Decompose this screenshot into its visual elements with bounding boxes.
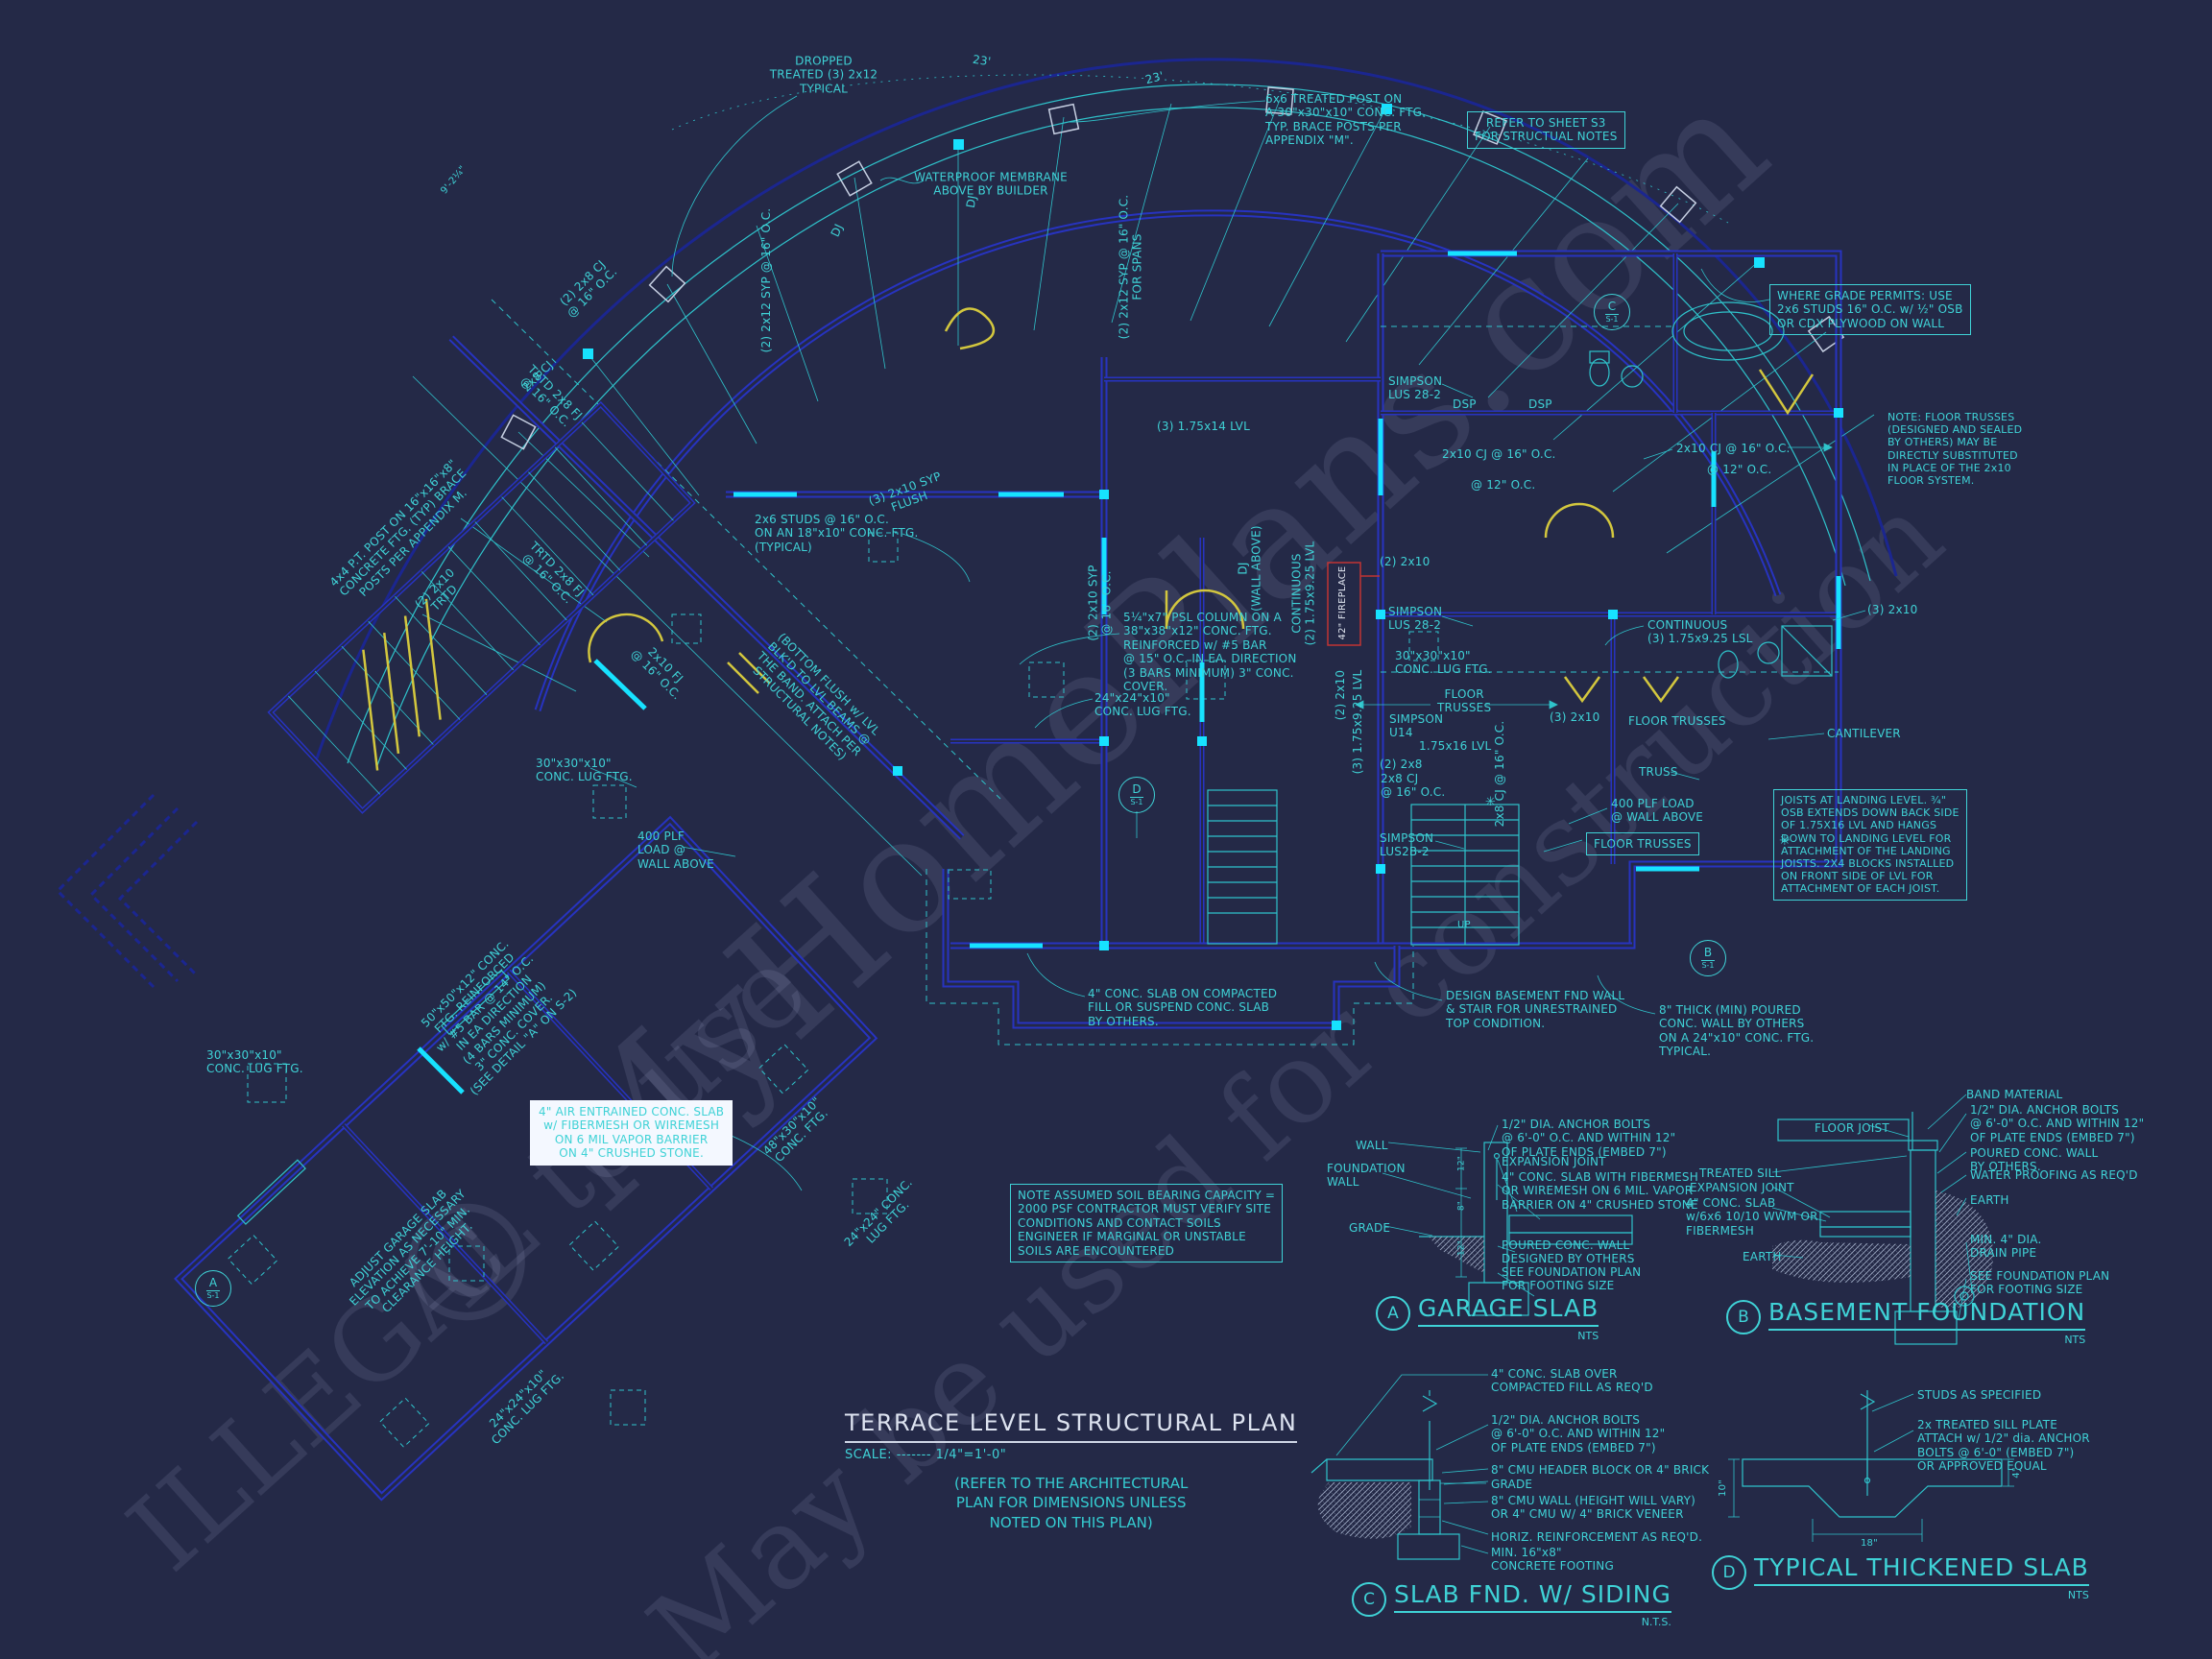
blueprint-canvas: © MyHomePlans.com ILLEGAL to use May be …: [0, 0, 2212, 1659]
annotation-label: 8": [1457, 1201, 1468, 1211]
annotation-label: @ 12" O.C.: [1471, 478, 1535, 492]
annotation-label: 18": [1861, 1538, 1878, 1550]
annotation-label: MIN. 4" DIA. DRAIN PIPE: [1970, 1233, 2041, 1261]
detail-ref-bubble: CS-1: [1594, 294, 1630, 330]
annotation-label: 2x TREATED SILL PLATE ATTACH w/ 1/2" dia…: [1917, 1418, 2090, 1474]
annotation-label: WATER PROOFING AS REQ'D: [1970, 1168, 2138, 1182]
annotation-label: 1/2" DIA. ANCHOR BOLTS @ 6'-0" O.C. AND …: [1502, 1118, 1675, 1159]
annotation-label: 30"x30"x10" CONC. LUG FTG.: [206, 1048, 303, 1076]
annotation-label: STUDS AS SPECIFIED: [1917, 1388, 2041, 1402]
annotation-label: 1/2" DIA. ANCHOR BOLTS @ 6'-0" O.C. AND …: [1491, 1413, 1665, 1455]
annotation-label: 23': [972, 53, 992, 69]
annotation-label: 8" THICK (MIN) POURED CONC. WALL BY OTHE…: [1659, 1003, 1814, 1059]
deck-post-markers: [501, 87, 1843, 449]
annotation-label: EXPANSION JOINT: [1690, 1181, 1794, 1194]
detail-ref-bubble: BS-1: [1690, 940, 1726, 976]
annotation-label: 8" CMU WALL (HEIGHT WILL VARY) OR 4" CMU…: [1491, 1494, 1695, 1522]
detail-a-scale: NTS: [1577, 1330, 1599, 1342]
detail-d-bubble: D: [1712, 1555, 1746, 1590]
annotation-label: GRADE: [1349, 1221, 1390, 1235]
annotation-label: 2x8 CJ @ 16" O.C.: [1493, 721, 1506, 828]
annotation-label: TRUSS: [1639, 765, 1678, 779]
detail-a-bubble: A: [1376, 1296, 1410, 1331]
detail-b-bubble: B: [1726, 1300, 1761, 1334]
annotation-label: (2) 2x12 SYP @ 16" O.C. FOR SPANS: [1118, 195, 1145, 340]
annotation-label: HORIZ. REINFORCEMENT AS REQ'D.: [1491, 1530, 1702, 1544]
annotation-label: NOTE: FLOOR TRUSSES (DESIGNED AND SEALED…: [1887, 411, 2022, 487]
annotation-label: DJ: [964, 194, 979, 208]
detail-b-scale: NTS: [2064, 1334, 2085, 1346]
annotation-label: SEE FOUNDATION PLAN FOR FOOTING SIZE: [1970, 1269, 2109, 1297]
annotation-label: 1.75x16 LVL: [1419, 739, 1491, 753]
detail-slab-fnd-siding: [1311, 1375, 1488, 1559]
annotation-label: WATERPROOF MEMBRANE ABOVE BY BUILDER: [914, 171, 1068, 199]
annotation-label: WALL: [1356, 1139, 1388, 1152]
detail-d-scale: NTS: [2068, 1589, 2089, 1601]
detail-d-title: D TYPICAL THICKENED SLAB NTS: [1712, 1553, 2089, 1601]
fireplace-outline: [1328, 563, 1380, 645]
annotation-label: TREATED SILL: [1699, 1166, 1781, 1180]
annotation-label: 30"x30"x10" CONC. LUG FTG.: [1395, 649, 1492, 677]
annotation-label: 2x6 STUDS @ 16" O.C. ON AN 18"x10" CONC.…: [755, 513, 918, 554]
annotation-label: 42" FIREPLACE: [1337, 566, 1349, 640]
annotation-label: DSP: [1453, 397, 1477, 411]
annotation-label: CONTINUOUS (3) 1.75x9.25 LSL: [1647, 618, 1753, 646]
annotation-label: 8" CMU HEADER BLOCK OR 4" BRICK: [1491, 1463, 1709, 1477]
scale-note: SCALE: ------- 1/4"=1'-0": [845, 1448, 1297, 1462]
annotation-label: GRADE: [1491, 1478, 1532, 1491]
annotation-label: SEE FOUNDATION PLAN FOR FOOTING SIZE: [1502, 1265, 1641, 1293]
annotation-label: (3) 2x10: [1550, 710, 1599, 724]
annotation-label: 12": [1457, 1240, 1468, 1256]
detail-c-bubble: C: [1352, 1582, 1386, 1617]
annotation-label: CANTILEVER: [1827, 727, 1901, 740]
annotation-label: JOISTS AT LANDING LEVEL. ¾" OSB EXTENDS …: [1773, 789, 1967, 901]
annotation-label: 400 PLF LOAD @ WALL ABOVE: [1611, 797, 1703, 825]
detail-d-label: TYPICAL THICKENED SLAB: [1754, 1553, 2089, 1586]
detail-c-scale: N.T.S.: [1642, 1616, 1671, 1628]
annotation-label: REFER TO SHEET S3 FOR STRUCTUAL NOTES: [1467, 111, 1625, 149]
annotation-label: POURED CONC. WALL DESIGNED BY OTHERS: [1502, 1238, 1635, 1266]
stair: [1208, 790, 1519, 945]
annotation-label: 2x10 CJ @ 16" O.C.: [1676, 442, 1791, 455]
annotation-label: 1/2" DIA. ANCHOR BOLTS @ 6'-0" O.C. AND …: [1970, 1103, 2144, 1144]
annotation-label: DESIGN BASEMENT FND WALL & STAIR FOR UNR…: [1446, 989, 1624, 1030]
detail-ref-bubble: DS-1: [1118, 777, 1155, 813]
annotation-label: 6x6 TREATED POST ON A 30"x30"x10" CONC. …: [1265, 92, 1426, 148]
title-block: TERRACE LEVEL STRUCTURAL PLAN SCALE: ---…: [845, 1409, 1297, 1532]
annotation-label: FLOOR TRUSSES: [1586, 832, 1699, 855]
annotation-label: 12": [1457, 1156, 1468, 1171]
annotation-label: 2x8 CJ @ 16" O.C.: [1381, 772, 1445, 800]
annotation-label: EXPANSION JOINT: [1502, 1155, 1606, 1168]
annotation-label: SIMPSON U14: [1389, 712, 1443, 740]
annotation-label: EARTH: [1743, 1250, 1782, 1263]
annotation-label: 2x10 CJ @ 16" O.C.: [1442, 447, 1556, 461]
detail-ref-bubble: AS-1: [195, 1270, 231, 1307]
annotation-label: (3) 1.75x14 LVL: [1157, 420, 1250, 433]
annotation-label: (2) 2x8: [1380, 757, 1423, 771]
annotation-label: FOUNDATION WALL: [1327, 1162, 1406, 1190]
reference-note: (REFER TO THE ARCHITECTURAL PLAN FOR DIM…: [845, 1474, 1297, 1532]
annotation-label: FLOOR TRUSSES: [1628, 714, 1726, 728]
annotation-label: 4": [2011, 1467, 2023, 1478]
annotation-label: (3) 2x10: [1867, 603, 1917, 616]
annotation-label: @ 12" O.C.: [1707, 463, 1771, 476]
annotation-label: NOTE ASSUMED SOIL BEARING CAPACITY = 200…: [1010, 1184, 1283, 1262]
annotation-label: DJ (WALL ABOVE): [1237, 525, 1264, 612]
detail-b-label: BASEMENT FOUNDATION: [1768, 1298, 2085, 1331]
detail-c-label: SLAB FND. W/ SIDING: [1394, 1580, 1671, 1613]
annotation-label: 4" CONC. SLAB OVER COMPACTED FILL AS REQ…: [1491, 1367, 1653, 1395]
annotation-label: 24"x24"x10" CONC. LUG FTG.: [1094, 691, 1191, 719]
annotation-label: UP: [1457, 920, 1471, 931]
annotation-label: 4" CONC. SLAB ON COMPACTED FILL OR SUSPE…: [1088, 987, 1277, 1028]
annotation-label: (2) 2x10 SYP @ 16" O.C.: [1087, 565, 1115, 640]
annotation-label: 5¼"x7" PSL COLUMN ON A 38"x38"x12" CONC.…: [1123, 611, 1297, 693]
detail-c-title: C SLAB FND. W/ SIDING N.T.S.: [1352, 1580, 1671, 1628]
annotation-label: BAND MATERIAL: [1966, 1088, 2062, 1101]
annotation-label: (3) 1.75x9.25 LVL: [1351, 670, 1364, 775]
annotation-label: CONTINUOUS (2) 1.75x9.25 LVL: [1290, 541, 1318, 646]
detail-b-title: B BASEMENT FOUNDATION NTS: [1726, 1298, 2085, 1346]
annotation-label: SIMPSON LUS2B-2: [1380, 831, 1433, 859]
annotation-label: 4" CONC. SLAB WITH FIBERMESH OR WIREMESH…: [1502, 1170, 1698, 1212]
annotation-label: FLOOR JOIST: [1815, 1121, 1889, 1135]
annotation-label: 30"x30"x10" CONC. LUG FTG.: [536, 757, 633, 784]
annotation-label: WHERE GRADE PERMITS: USE 2x6 STUDS 16" O…: [1769, 284, 1971, 335]
annotation-label: SIMPSON LUS 28-2: [1388, 374, 1442, 402]
annotation-label: DROPPED TREATED (3) 2x12 TYPICAL: [770, 54, 878, 95]
annotation-label: DSP: [1528, 397, 1552, 411]
annotation-label: 4" AIR ENTRAINED CONC. SLAB w/ FIBERMESH…: [530, 1100, 733, 1166]
annotation-label: MIN. 16"x8" CONCRETE FOOTING: [1491, 1546, 1614, 1574]
annotation-label: (2) 2x10: [1334, 670, 1347, 720]
annotation-label: FLOOR TRUSSES: [1437, 687, 1491, 715]
annotation-label: ✳: [1779, 833, 1791, 850]
annotation-label: 4" CONC. SLAB w/6x6 10/10 WWM OR FIBERME…: [1686, 1196, 1818, 1238]
detail-a-label: GARAGE SLAB: [1418, 1294, 1599, 1327]
annotation-label: (2) 2x12 SYP @ 16" O.C.: [759, 208, 773, 353]
annotation-label: 400 PLF LOAD @ WALL ABOVE: [637, 829, 714, 871]
annotation-label: EARTH: [1970, 1193, 2009, 1207]
annotation-label: 10": [1718, 1479, 1729, 1497]
page-title: TERRACE LEVEL STRUCTURAL PLAN: [845, 1409, 1297, 1443]
detail-a-title: A GARAGE SLAB NTS: [1376, 1294, 1599, 1342]
annotation-label: (2) 2x10: [1380, 555, 1430, 568]
annotation-label: SIMPSON LUS 28-2: [1388, 605, 1442, 633]
